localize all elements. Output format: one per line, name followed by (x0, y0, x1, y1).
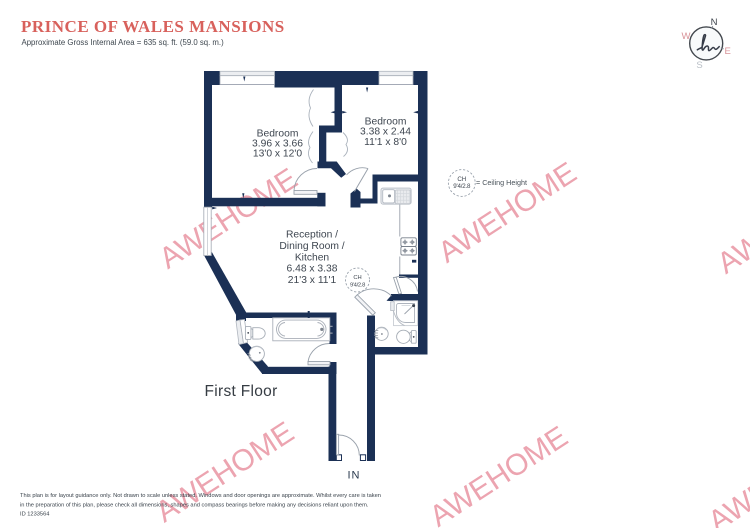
svg-text:CH: CH (353, 275, 361, 281)
svg-text:21'3 x 11'1: 21'3 x 11'1 (288, 275, 337, 286)
svg-text:S: S (696, 60, 702, 71)
svg-text:Reception /: Reception / (286, 229, 338, 240)
svg-text:Dining Room /: Dining Room / (279, 241, 344, 252)
svg-text:Approximate Gross Internal Are: Approximate Gross Internal Area = 635 sq… (22, 38, 225, 47)
svg-text:13'0 x 12'0: 13'0 x 12'0 (253, 149, 302, 160)
svg-text:IN: IN (348, 470, 361, 482)
svg-text:= Ceiling Height: = Ceiling Height (476, 178, 527, 187)
svg-text:PRINCE OF WALES MANSIONS: PRINCE OF WALES MANSIONS (21, 17, 285, 36)
svg-text:N: N (711, 17, 718, 28)
svg-text:This plan is for layout guidan: This plan is for layout guidance only. N… (20, 493, 381, 499)
svg-text:First Floor: First Floor (205, 383, 278, 400)
svg-text:in the preparation of this pla: in the preparation of this plan, please … (20, 503, 369, 509)
svg-text:ID 1233564: ID 1233564 (20, 512, 49, 518)
svg-text:CH: CH (457, 176, 466, 183)
svg-text:11'1 x 8'0: 11'1 x 8'0 (364, 137, 407, 148)
svg-text:E: E (725, 46, 731, 57)
svg-text:9'4/2.8: 9'4/2.8 (453, 183, 471, 190)
svg-text:6.48 x 3.38: 6.48 x 3.38 (287, 264, 338, 275)
svg-text:W: W (682, 31, 691, 42)
svg-text:Kitchen: Kitchen (295, 252, 330, 263)
svg-text:9'4/2.8: 9'4/2.8 (350, 282, 365, 288)
